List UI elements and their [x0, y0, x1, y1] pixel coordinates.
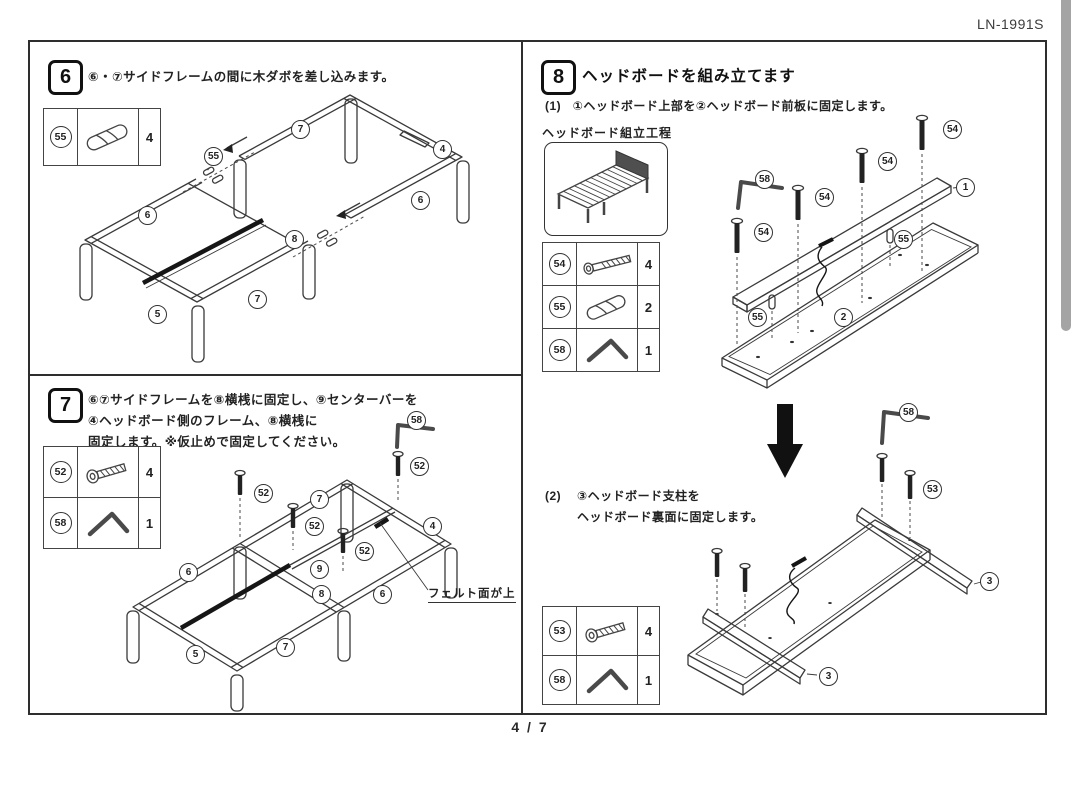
frame-half-left — [85, 179, 308, 302]
label-part-4: 4 — [433, 140, 452, 159]
step6-frame-halves-diagram — [55, 85, 515, 375]
step7-number-badge: 7 — [48, 388, 83, 423]
column-divider — [521, 40, 523, 713]
step8-title: ヘッドボードを組み立てます — [582, 64, 796, 86]
label-part-53: 53 — [923, 480, 942, 499]
cord — [787, 558, 806, 624]
label-part-3: 3 — [980, 572, 999, 591]
down-arrow — [767, 404, 803, 478]
label-part-54: 54 — [943, 120, 962, 139]
part-number-52: 52 — [50, 461, 72, 483]
bolt-icon — [580, 614, 634, 648]
label-part-8: 8 — [285, 230, 304, 249]
label-part-6: 6 — [138, 206, 157, 225]
label-part-7: 7 — [276, 638, 295, 657]
manual-page: LN-1991S 4 / 7 6 ⑥・⑦サイドフレームの間に木ダボを差し込みます… — [0, 0, 1080, 789]
step8-parts-table-1: 54 4 55 — [542, 242, 660, 372]
step8-sub1-label: (1) — [545, 99, 561, 113]
center-bar-felt — [143, 220, 266, 288]
step8-headboard-diagram-1 — [700, 95, 1045, 395]
label-part-54: 54 — [815, 188, 834, 207]
label-leaders — [807, 582, 981, 675]
headboard-highlight — [616, 151, 648, 179]
part-number-53: 53 — [549, 620, 571, 642]
headboard-top-bar — [733, 178, 961, 312]
label-part-5: 5 — [148, 305, 167, 324]
step8-sub2-label: (2) — [545, 486, 561, 507]
parts-row: 55 2 — [543, 285, 659, 328]
felt-side-up-callout: フェルト面が上 — [428, 585, 516, 603]
label-part-7: 7 — [310, 490, 329, 509]
long-bolt-icon — [580, 248, 634, 280]
step6-instruction: ⑥・⑦サイドフレームの間に木ダボを差し込みます。 — [88, 66, 395, 85]
step8-parts-table-2: 53 4 58 1 — [542, 606, 660, 705]
parts-row: 58 1 — [543, 328, 659, 371]
parts-row: 53 4 — [543, 607, 659, 655]
label-part-3: 3 — [819, 667, 838, 686]
label-part-58: 58 — [899, 403, 918, 422]
label-part-52: 52 — [254, 484, 273, 503]
label-part-58: 58 — [407, 411, 426, 430]
label-part-54: 54 — [878, 152, 897, 171]
label-part-55: 55 — [204, 147, 223, 166]
wood-dowels-55 — [769, 229, 893, 338]
label-part-52: 52 — [410, 457, 429, 476]
step7-frame-assembly-diagram — [125, 400, 520, 710]
label-part-6: 6 — [179, 563, 198, 582]
label-part-6: 6 — [373, 585, 392, 604]
label-part-9: 9 — [310, 560, 329, 579]
label-part-7: 7 — [291, 120, 310, 139]
label-part-7: 7 — [248, 290, 267, 309]
document-code: LN-1991S — [958, 16, 1044, 32]
label-part-54: 54 — [754, 223, 773, 242]
label-part-52: 52 — [355, 542, 374, 561]
scrollbar-thumb[interactable] — [1061, 0, 1071, 331]
label-part-2: 2 — [834, 308, 853, 327]
headboard-front-panel — [722, 223, 978, 388]
part-qty: 1 — [638, 656, 659, 704]
part-qty: 2 — [638, 286, 659, 328]
headboard-back-panel — [688, 520, 930, 695]
part-number-55: 55 — [549, 296, 571, 318]
wood-dowel-icon — [580, 291, 634, 323]
part-qty: 1 — [638, 329, 659, 371]
label-part-4: 4 — [423, 517, 442, 536]
label-part-52: 52 — [305, 517, 324, 536]
page-indicator: 4 / 7 — [480, 719, 580, 735]
part-number-58: 58 — [50, 512, 72, 534]
headboard-process-box — [544, 142, 668, 236]
label-part-55: 55 — [748, 308, 767, 327]
headboard-process-title: ヘッドボード組立工程 — [542, 124, 672, 141]
label-part-55: 55 — [894, 230, 913, 249]
center-bar-felt — [181, 508, 395, 628]
label-part-6: 6 — [411, 191, 430, 210]
part-number-58: 58 — [549, 669, 571, 691]
parts-row: 58 1 — [543, 655, 659, 704]
step8-headboard-diagram-2 — [680, 398, 1052, 710]
label-part-5: 5 — [186, 645, 205, 664]
part-number-54: 54 — [549, 253, 571, 275]
label-part-58: 58 — [755, 170, 774, 189]
bolts-53 — [712, 454, 915, 631]
part-qty: 4 — [638, 607, 659, 655]
hex-key-icon — [580, 334, 634, 366]
label-part-8: 8 — [312, 585, 331, 604]
label-part-1: 1 — [956, 178, 975, 197]
step8-number-badge: 8 — [541, 60, 576, 95]
parts-row: 54 4 — [543, 243, 659, 285]
hex-key-icon — [580, 663, 634, 697]
part-qty: 4 — [638, 243, 659, 285]
bed-thumbnail — [552, 148, 660, 230]
part-number-58: 58 — [549, 339, 571, 361]
